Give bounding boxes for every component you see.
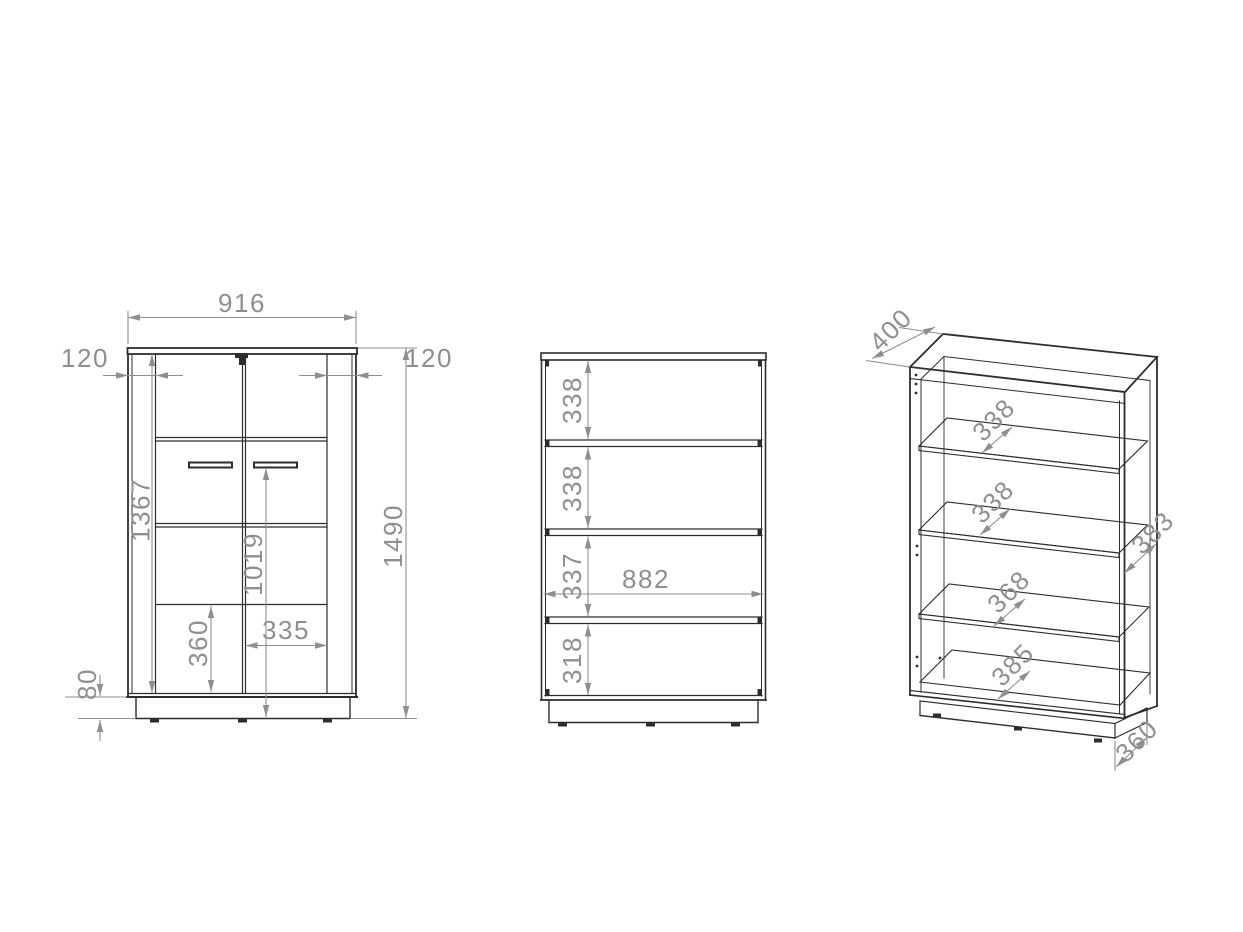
pin-hole (916, 554, 919, 557)
dim-compartment-1-label: 338 (557, 376, 587, 424)
internal-top-panel (541, 353, 766, 360)
corner-tick (758, 689, 762, 696)
iso-top-panel-underside (910, 379, 1125, 404)
iso-foot-1 (933, 714, 941, 718)
dim-side-left-label: 120 (61, 343, 109, 373)
iso-bottom-front-edge (910, 695, 1125, 719)
pin-hole (916, 656, 919, 659)
shelf-end-cap (546, 529, 550, 536)
iso-plinth-top-edge (920, 701, 1115, 724)
dim-plinth-height-label: 80 (72, 668, 102, 700)
dim-plinth-depth-label: 360 (1109, 713, 1164, 768)
front-door-top-connector (235, 353, 248, 358)
front-dimensions: 916 120 120 1367 1019 360 335 (61, 288, 453, 741)
shelf-end-cap (758, 529, 762, 536)
iso-foot-2 (1014, 727, 1022, 731)
dim-overall-width-label: 916 (218, 288, 266, 318)
dim-shelf-3-depth-label: 368 (981, 564, 1036, 619)
iso-bottom-front-inner-edge (910, 691, 1125, 715)
dim-lower-door-label: 360 (183, 619, 213, 667)
internal-view: 338 338 337 882 318 (541, 353, 766, 727)
technical-drawing-canvas: 916 120 120 1367 1019 360 335 (0, 0, 1243, 932)
pin-hole (939, 657, 942, 660)
pin-hole (915, 383, 918, 386)
dim-handle-height-label: 1019 (238, 532, 268, 596)
dim-bottom-shelf-depth-label: 385 (985, 637, 1040, 692)
dim-compartment-4-label: 318 (557, 636, 587, 684)
dim-door-width-label: 335 (262, 615, 310, 645)
iso-interior-top-edge (921, 357, 1150, 381)
dim-front-height-label: 1367 (126, 478, 156, 542)
shelf-end-cap (546, 440, 550, 447)
corner-tick (546, 689, 550, 696)
front-handle-right (254, 463, 297, 468)
dim-inner-width-label: 882 (622, 564, 670, 594)
pin-hole (915, 374, 918, 377)
dim-shelf-1-depth-label: 338 (966, 392, 1021, 447)
pin-hole (916, 665, 919, 668)
dim-shelf-2-depth-label: 338 (965, 474, 1020, 529)
corner-tick (546, 361, 550, 367)
front-handle-left (189, 463, 232, 468)
dim-compartment-3-label: 337 (557, 552, 587, 600)
drawing-svg: 916 120 120 1367 1019 360 335 (0, 0, 1243, 932)
front-door-top-connector-stem (239, 358, 245, 365)
internal-foot-3 (731, 723, 740, 727)
pin-hole (916, 545, 919, 548)
isometric-view: 400 338 338 368 385 383 360 (863, 302, 1180, 771)
dim-top-depth-label: 400 (863, 302, 918, 357)
shelf-end-cap (758, 440, 762, 447)
iso-shelf-2-top (919, 502, 1148, 553)
internal-foot-1 (558, 723, 567, 727)
iso-carcass (910, 334, 1157, 743)
front-foot-3 (323, 719, 332, 723)
pin-hole (915, 392, 918, 395)
ext-line (866, 361, 910, 368)
shelf-end-cap (546, 617, 550, 624)
iso-shelf-3-top (919, 584, 1149, 637)
front-foot-1 (150, 719, 159, 723)
corner-tick (758, 361, 762, 367)
dim-overall-height-label: 1490 (378, 504, 408, 568)
iso-shelf-2-front (919, 530, 1119, 558)
dim-compartment-2-label: 338 (557, 464, 587, 512)
iso-shelf-1-top (919, 418, 1148, 469)
front-view: 916 120 120 1367 1019 360 335 (61, 288, 453, 741)
iso-foot-3 (1094, 739, 1102, 743)
iso-shelf-1-front (919, 446, 1119, 474)
front-foot-2 (238, 719, 247, 723)
internal-dimensions: 338 338 337 882 318 (544, 361, 764, 695)
internal-foot-2 (646, 723, 655, 727)
dim-side-depth-label: 383 (1125, 505, 1180, 560)
shelf-end-cap (758, 617, 762, 624)
